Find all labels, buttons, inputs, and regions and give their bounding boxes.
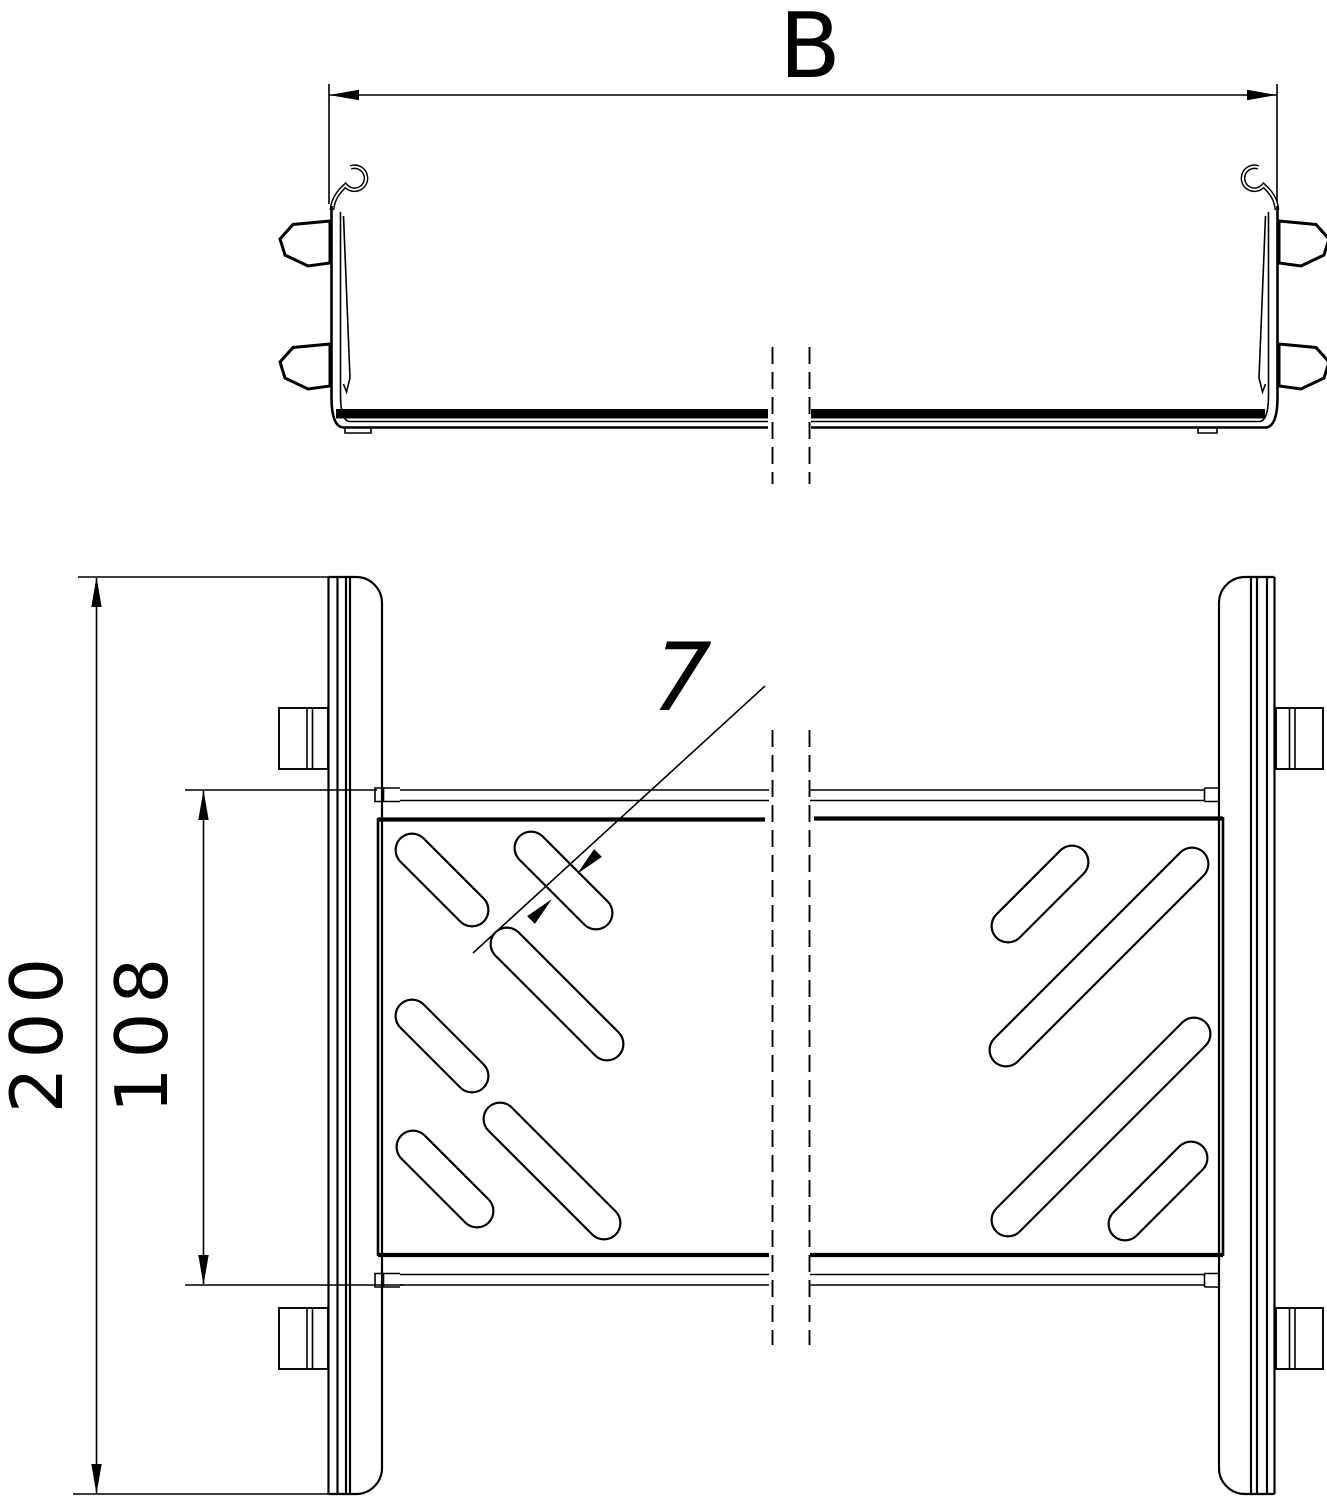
rail-right-plan	[1219, 577, 1275, 1494]
clamp-spring	[1259, 216, 1266, 392]
leader-arrowhead-upper	[577, 849, 602, 874]
slotted-holes	[412, 848, 1194, 1224]
break-lines-cross-section	[773, 347, 810, 484]
wall-floor-inner	[341, 212, 769, 422]
arrowhead-bottom	[198, 1255, 208, 1285]
dimension-value-108: 108	[100, 949, 184, 1113]
connector-plate	[378, 817, 1223, 1256]
edge-notch	[1205, 1274, 1220, 1288]
dimension-value-200: 200	[0, 949, 79, 1113]
rail-left-plan	[329, 577, 383, 1494]
latch-knob-upper	[1279, 221, 1327, 266]
tab-upper-left	[279, 708, 328, 769]
arrowhead-bottom	[91, 1464, 101, 1494]
tab-upper-right	[1276, 708, 1323, 769]
latch-knob-upper	[280, 221, 330, 266]
tray-floor-section	[811, 409, 1265, 419]
side-rail-right-profile	[811, 167, 1327, 433]
clamp-spring	[344, 216, 351, 392]
wall-floor-outer	[332, 206, 769, 428]
latch-knob-lower	[280, 344, 330, 389]
edge-notch	[375, 788, 400, 802]
slot-width-callout: 7	[473, 622, 765, 953]
edge-notch	[1205, 788, 1220, 802]
dimension-108: 108	[100, 790, 404, 1285]
wall-floor-inner	[811, 212, 1269, 422]
arrowhead-right	[1247, 90, 1277, 100]
slot-width-value-7: 7	[636, 622, 723, 732]
edge-hook-inner	[332, 167, 366, 210]
latch-knob-lower	[1279, 344, 1327, 389]
leader-arrowhead-lower	[527, 899, 552, 924]
cross-section-view: B	[280, 0, 1327, 484]
cable-tray-connector-drawing: B	[0, 0, 1327, 1500]
arrowhead-top	[198, 790, 208, 820]
arrowhead-left	[329, 90, 359, 100]
arrowhead-top	[91, 577, 101, 607]
plan-view: 200 108	[0, 577, 1323, 1494]
wall-floor-outer	[811, 206, 1278, 428]
tray-edges-plan	[375, 788, 1219, 1287]
side-rail-left-profile	[280, 167, 768, 433]
dimension-b: B	[329, 0, 1277, 204]
break-lines-plan	[773, 730, 810, 1345]
edge-hook-inner	[1243, 167, 1277, 210]
tab-lower-left	[279, 1308, 328, 1369]
technical-drawing-page: B	[0, 0, 1327, 1500]
dimension-label-b: B	[779, 0, 841, 99]
tray-floor-section	[336, 409, 768, 419]
tab-lower-right	[1276, 1308, 1323, 1369]
